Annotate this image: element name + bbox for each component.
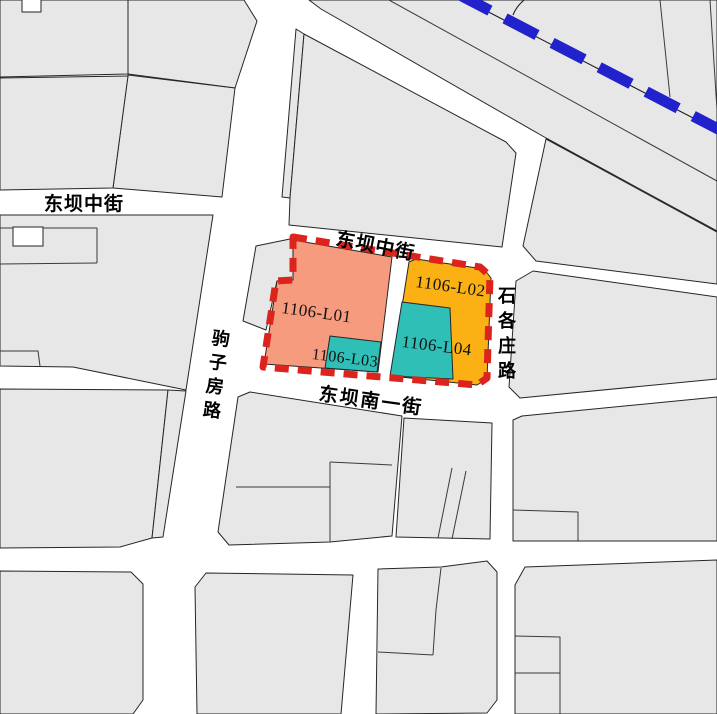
city-block <box>0 0 128 77</box>
city-block <box>513 397 717 541</box>
lot-1106-L04 <box>390 302 453 379</box>
city-block <box>113 75 235 197</box>
city-block <box>195 573 353 714</box>
city-block <box>0 389 168 548</box>
parcel-notch <box>13 227 43 246</box>
city-block <box>0 571 143 714</box>
city-block <box>376 561 497 714</box>
city-block <box>218 392 402 545</box>
lot-1106-L03 <box>325 336 381 372</box>
map-canvas <box>0 0 717 714</box>
city-block <box>396 418 492 539</box>
city-block <box>509 271 717 398</box>
zoning-map: 东坝中街 东坝中街 东坝南一街 驹子房路 石各庄路 1106-L01 1106-… <box>0 0 717 714</box>
city-block <box>0 76 128 190</box>
city-block <box>128 0 257 88</box>
